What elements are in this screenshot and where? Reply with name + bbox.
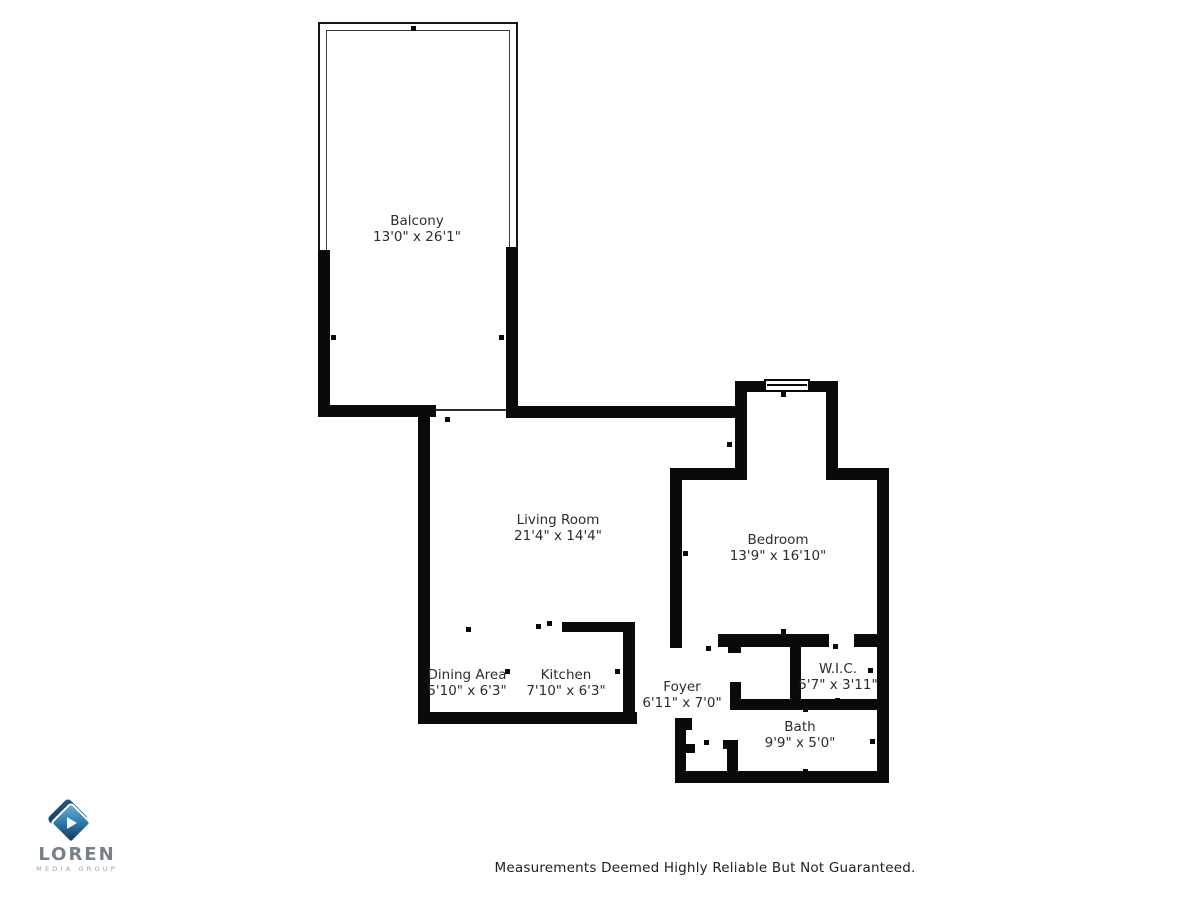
room-dimensions: 6'11" x 7'0" [622,695,742,711]
play-diamond-icon [47,800,93,846]
measure-tick [781,629,786,634]
wall-segment [670,468,682,648]
measure-tick [466,627,471,632]
wall-segment [718,634,829,647]
room-name: Foyer [622,679,742,695]
room-name: Bedroom [718,532,838,548]
room-name: Kitchen [506,667,626,683]
measure-tick [683,551,688,556]
wall-segment [728,647,741,653]
room-dimensions: 9'9" x 5'0" [740,735,860,751]
balcony-sliding-door-opening [436,409,506,411]
room-label-bedroom: Bedroom 13'9" x 16'10" [718,532,838,564]
measure-tick [833,644,838,649]
room-dimensions: 13'0" x 26'1" [357,229,477,245]
play-triangle-icon [67,817,77,829]
wall-segment [723,740,738,749]
wall-segment [854,634,889,647]
measure-tick [331,335,336,340]
measure-tick [547,621,552,626]
wall-segment [686,744,695,753]
measure-tick [499,335,504,340]
floor-plan-page: Balcony 13'0" x 26'1" Living Room 21'4" … [0,0,1200,900]
room-label-balcony: Balcony 13'0" x 26'1" [357,213,477,245]
room-name: Bath [740,719,860,735]
measure-tick [727,442,732,447]
room-name: Living Room [498,512,618,528]
wall-segment [318,250,330,417]
room-label-bath: Bath 9'9" x 5'0" [740,719,860,751]
room-label-foyer: Foyer 6'11" x 7'0" [622,679,742,711]
measure-tick [536,715,541,720]
room-dimensions: 7'10" x 6'3" [506,683,626,699]
room-label-wic: W.I.C. 5'7" x 3'11" [778,661,898,693]
measure-tick [781,392,786,397]
wall-segment [506,247,518,417]
room-name: W.I.C. [778,661,898,677]
measure-tick [464,715,469,720]
measure-tick [870,739,875,744]
measure-tick [704,740,709,745]
measure-tick [803,707,808,712]
room-label-kitchen: Kitchen 7'10" x 6'3" [506,667,626,699]
measure-tick [803,769,808,774]
measure-tick [835,698,840,703]
wall-segment [418,712,637,724]
room-dimensions: 5'7" x 3'11" [778,677,898,693]
room-dimensions: 13'9" x 16'10" [718,548,838,564]
wall-segment [506,406,743,418]
measure-tick [411,26,416,31]
logo-wordmark: LOREN [25,846,129,864]
wall-segment [675,771,889,783]
room-name: Balcony [357,213,477,229]
bedroom-window-mullion [767,384,807,386]
wall-segment [735,381,747,480]
measure-tick [706,646,711,651]
wall-segment [877,468,889,783]
logo-subtitle: MEDIA GROUP [25,865,129,873]
wall-segment [735,381,766,392]
disclaimer-text: Measurements Deemed Highly Reliable But … [455,860,955,876]
logo: LOREN MEDIA GROUP [25,796,129,882]
room-label-living-room: Living Room 21'4" x 14'4" [498,512,618,544]
measure-tick [536,624,541,629]
wall-segment [826,381,838,480]
measure-tick [445,417,450,422]
room-dimensions: 21'4" x 14'4" [498,528,618,544]
